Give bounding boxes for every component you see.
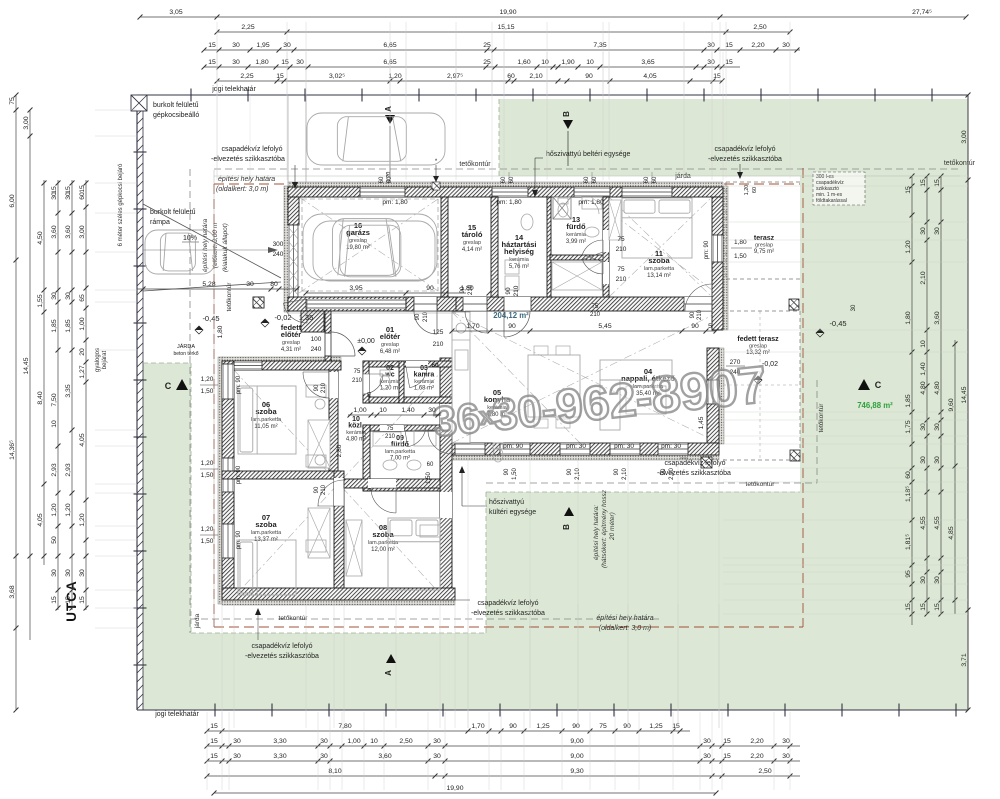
svg-text:1,20: 1,20: [201, 376, 214, 383]
svg-text:1,68 m²: 1,68 m²: [414, 386, 434, 392]
svg-text:15,15: 15,15: [497, 24, 514, 31]
svg-text:-elvezetés szikkasztóba: -elvezetés szikkasztóba: [245, 653, 319, 660]
svg-text:pm: 30: pm: 30: [614, 443, 634, 450]
svg-text:3,99 m²: 3,99 m²: [566, 239, 586, 245]
svg-text:30: 30: [428, 407, 436, 414]
svg-text:2,10: 2,10: [529, 73, 542, 80]
svg-text:4,80: 4,80: [920, 381, 927, 394]
svg-text:kültéri egysége: kültéri egysége: [489, 509, 536, 516]
svg-text:1,50: 1,50: [201, 538, 214, 545]
svg-text:lam.parketta: lam.parketta: [368, 540, 399, 546]
svg-text:2,25: 2,25: [240, 73, 253, 80]
svg-text:210: 210: [352, 378, 363, 384]
svg-text:60: 60: [507, 73, 515, 80]
svg-text:4,50: 4,50: [37, 231, 44, 244]
svg-text:2,50: 2,50: [758, 768, 771, 775]
svg-text:30: 30: [934, 456, 941, 464]
svg-text:27,74⁵: 27,74⁵: [912, 9, 932, 16]
svg-text:15: 15: [51, 596, 58, 604]
svg-text:1,70: 1,70: [471, 723, 484, 730]
svg-text:4,05: 4,05: [643, 73, 656, 80]
svg-text:30: 30: [934, 227, 941, 235]
svg-text:90: 90: [623, 723, 631, 730]
svg-text:1,20: 1,20: [65, 503, 72, 516]
svg-text:1,20: 1,20: [201, 460, 214, 467]
svg-text:60: 60: [905, 471, 912, 479]
svg-text:6,00: 6,00: [9, 194, 16, 207]
svg-text:6 méter széles gépkocsi bejáró: 6 méter széles gépkocsi bejáró: [118, 163, 124, 246]
svg-text:tetőkontúr: tetőkontúr: [279, 615, 309, 622]
svg-text:30: 30: [320, 738, 328, 745]
svg-text:pm: 1,80: pm: 1,80: [578, 199, 604, 206]
svg-text:30: 30: [703, 738, 711, 745]
svg-text:1,50: 1,50: [201, 388, 214, 395]
svg-text:2,20: 2,20: [750, 738, 763, 745]
svg-text:tetőkontúr: tetőkontúr: [818, 403, 825, 433]
svg-text:2,97⁵: 2,97⁵: [447, 73, 463, 80]
svg-text:tetőkontúr: tetőkontúr: [944, 160, 976, 167]
svg-text:30: 30: [934, 423, 941, 431]
svg-text:burkolt felületű: burkolt felületű: [153, 102, 199, 109]
svg-text:75: 75: [387, 426, 394, 432]
svg-text:30: 30: [232, 42, 240, 49]
svg-text:15: 15: [905, 186, 912, 194]
svg-text:1,20: 1,20: [386, 172, 392, 183]
svg-text:13,32 m²: 13,32 m²: [746, 350, 770, 356]
svg-text:3,71: 3,71: [961, 653, 968, 666]
svg-text:746,88 m²: 746,88 m²: [857, 401, 893, 410]
svg-text:30: 30: [920, 456, 927, 464]
svg-text:3,65: 3,65: [641, 59, 654, 66]
svg-text:210: 210: [590, 312, 601, 318]
svg-text:fedett terasz: fedett terasz: [737, 336, 779, 343]
svg-text:90: 90: [426, 285, 434, 292]
svg-text:20: 20: [79, 348, 86, 356]
svg-text:30: 30: [51, 292, 58, 300]
svg-text:1,25: 1,25: [536, 723, 549, 730]
svg-text:1,81⁵: 1,81⁵: [905, 534, 912, 550]
svg-text:15: 15: [920, 603, 927, 611]
svg-text:10: 10: [370, 738, 378, 745]
svg-text:11,05 m²: 11,05 m²: [254, 424, 277, 430]
svg-text:B: B: [562, 524, 571, 530]
svg-text:1,90: 1,90: [561, 59, 574, 66]
svg-text:1,80: 1,80: [217, 325, 224, 338]
svg-text:240: 240: [311, 346, 322, 353]
svg-text:60: 60: [752, 187, 758, 193]
svg-text:15: 15: [79, 596, 86, 604]
svg-text:15: 15: [934, 603, 941, 611]
svg-text:75: 75: [599, 723, 607, 730]
svg-text:tetőkontúr: tetőkontúr: [226, 282, 233, 312]
svg-text:10: 10: [379, 407, 387, 414]
svg-text:30: 30: [782, 42, 790, 49]
svg-text:jogi telekhatár: jogi telekhatár: [211, 86, 256, 93]
svg-text:15: 15: [281, 59, 289, 66]
svg-text:hőszivattyú: hőszivattyú: [489, 499, 524, 506]
svg-text:6,48 m²: 6,48 m²: [380, 349, 400, 355]
svg-text:járda: járda: [674, 173, 691, 180]
svg-text:1,20: 1,20: [79, 513, 86, 526]
svg-text:10: 10: [920, 340, 927, 348]
svg-text:15: 15: [210, 753, 218, 760]
svg-text:3,00: 3,00: [23, 116, 30, 129]
svg-text:burkolt felületű: burkolt felületű: [150, 209, 196, 216]
svg-text:90: 90: [690, 311, 696, 318]
svg-text:építési hely határa: építési hely határa: [218, 176, 275, 183]
svg-text:fürdő: fürdő: [566, 222, 586, 231]
svg-text:-0,45: -0,45: [202, 314, 219, 323]
svg-text:építési hely határa:: építési hely határa:: [593, 505, 600, 560]
svg-text:40: 40: [367, 392, 373, 398]
svg-text:pm: 90: pm: 90: [236, 465, 242, 484]
svg-text:1,80: 1,80: [905, 311, 912, 324]
svg-text:szoba: szoba: [255, 520, 277, 529]
svg-text:1,00: 1,00: [347, 738, 360, 745]
svg-text:csapadékvíz lefolyó: csapadékvíz lefolyó: [221, 146, 282, 153]
svg-text:1,35: 1,35: [299, 313, 314, 322]
svg-text:előtér: előtér: [281, 330, 302, 339]
svg-text:1,50: 1,50: [734, 253, 747, 260]
svg-text:1,85: 1,85: [65, 319, 72, 332]
svg-text:3,60: 3,60: [378, 753, 391, 760]
svg-text:90: 90: [505, 287, 512, 295]
svg-text:8,40: 8,40: [37, 391, 44, 404]
svg-text:1,20: 1,20: [744, 185, 750, 196]
svg-text:1,85: 1,85: [905, 394, 912, 407]
svg-text:210: 210: [385, 434, 396, 440]
svg-text:65: 65: [79, 294, 86, 302]
svg-text:2,25: 2,25: [241, 24, 254, 31]
svg-text:3,95: 3,95: [349, 285, 362, 292]
svg-text:10: 10: [586, 59, 594, 66]
svg-text:30: 30: [920, 576, 927, 584]
svg-text:30: 30: [232, 59, 240, 66]
svg-text:1,27: 1,27: [79, 365, 86, 378]
svg-text:60: 60: [379, 176, 385, 183]
svg-text:4,05: 4,05: [79, 433, 86, 446]
svg-text:4,05: 4,05: [37, 513, 44, 526]
svg-text:20 méter): 20 méter): [609, 512, 616, 541]
svg-text:12,00 m²: 12,00 m²: [371, 547, 395, 553]
svg-text:30: 30: [320, 753, 328, 760]
svg-text:csapadékvíz lefolyó: csapadékvíz lefolyó: [664, 460, 725, 467]
svg-text:1,50: 1,50: [426, 472, 432, 484]
svg-text:lam.parketta: lam.parketta: [385, 449, 416, 455]
svg-text:bejárat: bejárat: [102, 351, 108, 370]
svg-text:pm: 30: pm: 30: [566, 443, 586, 450]
svg-text:30: 30: [51, 569, 58, 577]
svg-text:30: 30: [296, 59, 304, 66]
svg-text:helyiség: helyiség: [504, 247, 534, 256]
svg-text:szoba: szoba: [648, 256, 670, 265]
svg-text:19,80 m²: 19,80 m²: [346, 245, 370, 251]
svg-text:csapadékvíz lefolyó: csapadékvíz lefolyó: [714, 146, 775, 153]
svg-text:60: 60: [427, 462, 434, 468]
svg-text:beton térkő: beton térkő: [173, 351, 198, 357]
svg-text:30: 30: [233, 738, 241, 745]
svg-text:25: 25: [483, 59, 491, 66]
svg-text:95: 95: [905, 570, 912, 578]
svg-text:1,20: 1,20: [201, 526, 214, 533]
svg-text:60: 60: [652, 176, 658, 183]
svg-text:210: 210: [697, 309, 703, 320]
svg-text:7,80: 7,80: [338, 723, 351, 730]
svg-text:1,18⁵: 1,18⁵: [905, 486, 912, 502]
svg-text:pm: 90: pm: 90: [503, 443, 523, 450]
svg-text:210: 210: [468, 284, 474, 295]
svg-text:7,35: 7,35: [593, 42, 606, 49]
svg-text:kerámia: kerámia: [346, 430, 367, 436]
svg-text:125: 125: [433, 329, 444, 336]
svg-text:90: 90: [415, 313, 421, 320]
svg-text:15: 15: [672, 723, 680, 730]
svg-text:4,80 m²: 4,80 m²: [346, 437, 366, 443]
svg-text:30: 30: [920, 227, 927, 235]
svg-text:15: 15: [723, 738, 731, 745]
svg-text:90: 90: [661, 468, 667, 475]
svg-text:75: 75: [9, 97, 16, 105]
svg-text:1,70: 1,70: [466, 323, 479, 330]
svg-text:2,93: 2,93: [51, 463, 58, 476]
svg-text:15: 15: [51, 186, 58, 194]
svg-text:19,90: 19,90: [499, 9, 516, 16]
svg-text:60: 60: [509, 176, 515, 183]
svg-text:előtér: előtér: [380, 332, 401, 341]
svg-text:204,12 m²: 204,12 m²: [493, 311, 529, 320]
svg-text:pm: 90: pm: 90: [236, 530, 242, 549]
svg-text:30: 30: [782, 738, 790, 745]
svg-text:1,25: 1,25: [649, 723, 662, 730]
svg-text:3,00: 3,00: [79, 225, 86, 238]
svg-text:30: 30: [65, 292, 72, 300]
svg-text:15: 15: [920, 179, 927, 187]
svg-text:1,85: 1,85: [51, 319, 58, 332]
svg-text:3,60: 3,60: [65, 225, 72, 238]
svg-text:greslap: greslap: [463, 240, 481, 246]
svg-text:4,31 m²: 4,31 m²: [281, 347, 301, 353]
svg-text:kerámia: kerámia: [414, 379, 435, 385]
svg-text:75: 75: [617, 266, 625, 273]
svg-text:5: 5: [708, 323, 712, 330]
svg-text:30: 30: [246, 281, 254, 288]
svg-text:2,10: 2,10: [622, 468, 628, 480]
svg-text:15: 15: [65, 186, 72, 194]
svg-text:90: 90: [614, 468, 620, 475]
svg-text:-elvezetés szikkasztóba: -elvezetés szikkasztóba: [708, 156, 782, 163]
svg-text:JÁRDA: JÁRDA: [177, 343, 195, 350]
svg-text:14,45: 14,45: [23, 357, 30, 374]
svg-text:C: C: [875, 380, 882, 390]
svg-text:60: 60: [592, 176, 598, 183]
svg-text:greslap: greslap: [755, 243, 773, 249]
svg-text:15: 15: [208, 59, 216, 66]
svg-text:15: 15: [79, 185, 86, 193]
svg-text:4,80: 4,80: [934, 381, 941, 394]
svg-text:9,60: 9,60: [948, 398, 955, 411]
svg-text:90: 90: [572, 723, 580, 730]
svg-text:fürdő: fürdő: [391, 442, 409, 449]
svg-text:1,45: 1,45: [698, 416, 705, 429]
svg-text:15: 15: [65, 596, 72, 604]
svg-text:4,14 m²: 4,14 m²: [462, 247, 482, 253]
svg-text:pm: 1,80: pm: 1,80: [496, 199, 522, 206]
svg-text:1,95: 1,95: [256, 42, 269, 49]
svg-text:100: 100: [311, 336, 322, 343]
svg-text:2,20: 2,20: [751, 42, 764, 49]
svg-text:építési hely határa: építési hely határa: [596, 615, 653, 622]
svg-text:30: 30: [934, 576, 941, 584]
svg-text:5,45: 5,45: [598, 323, 611, 330]
svg-text:19,90: 19,90: [446, 785, 463, 792]
svg-text:4,55: 4,55: [920, 516, 927, 529]
svg-text:(oldalkert: 3,0 m): (oldalkert: 3,0 m): [599, 625, 652, 632]
svg-text:2,93: 2,93: [65, 463, 72, 476]
svg-text:30: 30: [707, 59, 715, 66]
svg-text:7,50: 7,50: [51, 393, 58, 406]
svg-text:15: 15: [208, 42, 216, 49]
svg-text:30: 30: [433, 753, 441, 760]
svg-text:30: 30: [782, 753, 790, 760]
svg-text:tetőkontúr: tetőkontúr: [459, 161, 491, 168]
svg-text:3,60: 3,60: [934, 311, 941, 324]
svg-text:greslap: greslap: [349, 238, 367, 244]
svg-text:B: B: [562, 111, 571, 117]
svg-text:A: A: [384, 670, 393, 676]
svg-text:3,35: 3,35: [65, 384, 72, 397]
svg-text:10: 10: [51, 420, 58, 428]
svg-text:2,50: 2,50: [399, 738, 412, 745]
svg-text:1,40: 1,40: [920, 362, 927, 375]
svg-text:30: 30: [920, 423, 927, 431]
svg-text:2,80: 2,80: [336, 444, 343, 457]
svg-text:szoba: szoba: [372, 530, 394, 539]
svg-text:10: 10: [541, 59, 549, 66]
svg-text:szoba: szoba: [255, 407, 277, 416]
svg-text:építési hely határa: építési hely határa: [202, 218, 209, 272]
svg-text:9,00: 9,00: [570, 753, 583, 760]
svg-text:90: 90: [504, 468, 510, 475]
svg-text:hőszivattyú beltéri egysége: hőszivattyú beltéri egysége: [546, 151, 631, 158]
svg-text:30: 30: [233, 753, 241, 760]
svg-text:lam.parketta: lam.parketta: [644, 266, 675, 272]
svg-text:járda: járda: [194, 613, 201, 629]
svg-text:terasz: terasz: [754, 235, 775, 242]
svg-text:15: 15: [276, 73, 284, 80]
svg-text:1,75: 1,75: [905, 420, 912, 433]
svg-text:240: 240: [273, 251, 284, 258]
svg-text:90: 90: [508, 323, 516, 330]
svg-text:60: 60: [644, 176, 650, 183]
svg-text:4,55: 4,55: [934, 516, 941, 529]
svg-text:kerámia: kerámia: [380, 379, 401, 385]
svg-text:60: 60: [431, 362, 439, 369]
svg-text:±0,00: ±0,00: [357, 338, 375, 345]
svg-text:2,10: 2,10: [669, 468, 675, 480]
svg-text:lam.parketta: lam.parketta: [251, 530, 282, 536]
svg-text:15: 15: [934, 179, 941, 187]
svg-text:15: 15: [905, 603, 912, 611]
svg-text:3,02⁵: 3,02⁵: [329, 73, 345, 80]
svg-text:A: A: [384, 106, 393, 112]
svg-text:90: 90: [585, 73, 593, 80]
svg-text:15: 15: [210, 723, 218, 730]
svg-text:földtakarással: földtakarással: [816, 198, 847, 204]
svg-text:greslap: greslap: [282, 340, 300, 346]
svg-text:kerámia: kerámia: [566, 232, 587, 238]
svg-text:1,50: 1,50: [512, 468, 518, 480]
svg-text:közl.: közl.: [348, 423, 364, 430]
svg-text:15: 15: [725, 42, 733, 49]
svg-text:9,30: 9,30: [570, 768, 583, 775]
svg-text:4,85: 4,85: [948, 526, 955, 539]
svg-text:garázs: garázs: [346, 228, 370, 237]
svg-text:210: 210: [616, 246, 627, 253]
svg-text:30: 30: [851, 304, 857, 311]
svg-text:csapadékvíz lefolyó: csapadékvíz lefolyó: [251, 643, 312, 650]
svg-text:50: 50: [51, 536, 58, 544]
svg-text:jogi telekhatár: jogi telekhatár: [154, 711, 199, 718]
svg-text:1,55: 1,55: [37, 294, 44, 307]
svg-text:13,14 m²: 13,14 m²: [647, 273, 671, 279]
svg-text:1,00: 1,00: [353, 407, 366, 414]
svg-text:2,20: 2,20: [750, 753, 763, 760]
svg-text:1,20: 1,20: [388, 73, 401, 80]
svg-text:15: 15: [725, 59, 733, 66]
svg-text:1,80: 1,80: [255, 59, 268, 66]
svg-text:210: 210: [616, 276, 627, 283]
svg-text:1,20: 1,20: [905, 240, 912, 253]
svg-text:30: 30: [65, 569, 72, 577]
svg-text:3,05: 3,05: [169, 9, 182, 16]
svg-text:rámpa: rámpa: [150, 219, 170, 226]
svg-text:210: 210: [321, 484, 327, 495]
svg-text:gépkocsibeálló: gépkocsibeálló: [153, 112, 199, 119]
svg-text:30: 30: [79, 569, 86, 577]
svg-text:210: 210: [321, 382, 327, 393]
svg-text:greslap: greslap: [381, 342, 399, 348]
svg-text:9,00: 9,00: [570, 738, 583, 745]
svg-text:tároló: tároló: [462, 230, 483, 239]
svg-text:gyalogos: gyalogos: [95, 348, 101, 372]
svg-text:30: 30: [703, 753, 711, 760]
svg-text:1,20: 1,20: [51, 503, 58, 516]
svg-text:3,30: 3,30: [273, 753, 286, 760]
svg-text:-elvezetés szikkasztóba: -elvezetés szikkasztóba: [211, 156, 285, 163]
svg-text:-0,45: -0,45: [829, 319, 846, 328]
svg-text:75: 75: [354, 369, 361, 375]
svg-text:90: 90: [314, 486, 320, 493]
svg-text:csapadékvíz lefolyó: csapadékvíz lefolyó: [477, 600, 538, 607]
svg-text:-elvezetés szikkasztóba: -elvezetés szikkasztóba: [471, 610, 545, 617]
svg-text:1,00: 1,00: [79, 317, 86, 330]
svg-text:pm: 90: pm: 90: [236, 375, 242, 394]
svg-text:300: 300: [273, 241, 284, 248]
svg-text:75: 75: [617, 236, 625, 243]
svg-text:9,75 m²: 9,75 m²: [754, 249, 774, 255]
svg-text:3,00: 3,00: [961, 130, 968, 143]
svg-text:lam.parketta: lam.parketta: [251, 417, 282, 423]
svg-text:210: 210: [433, 341, 444, 348]
svg-text:1,60: 1,60: [517, 59, 530, 66]
svg-text:60: 60: [584, 176, 590, 183]
svg-text:210: 210: [513, 285, 520, 296]
svg-text:90: 90: [314, 384, 320, 391]
svg-text:pm: 1,80: pm: 1,80: [382, 199, 408, 206]
svg-text:90: 90: [567, 468, 573, 475]
svg-text:15: 15: [210, 738, 218, 745]
svg-text:80: 80: [270, 281, 278, 288]
